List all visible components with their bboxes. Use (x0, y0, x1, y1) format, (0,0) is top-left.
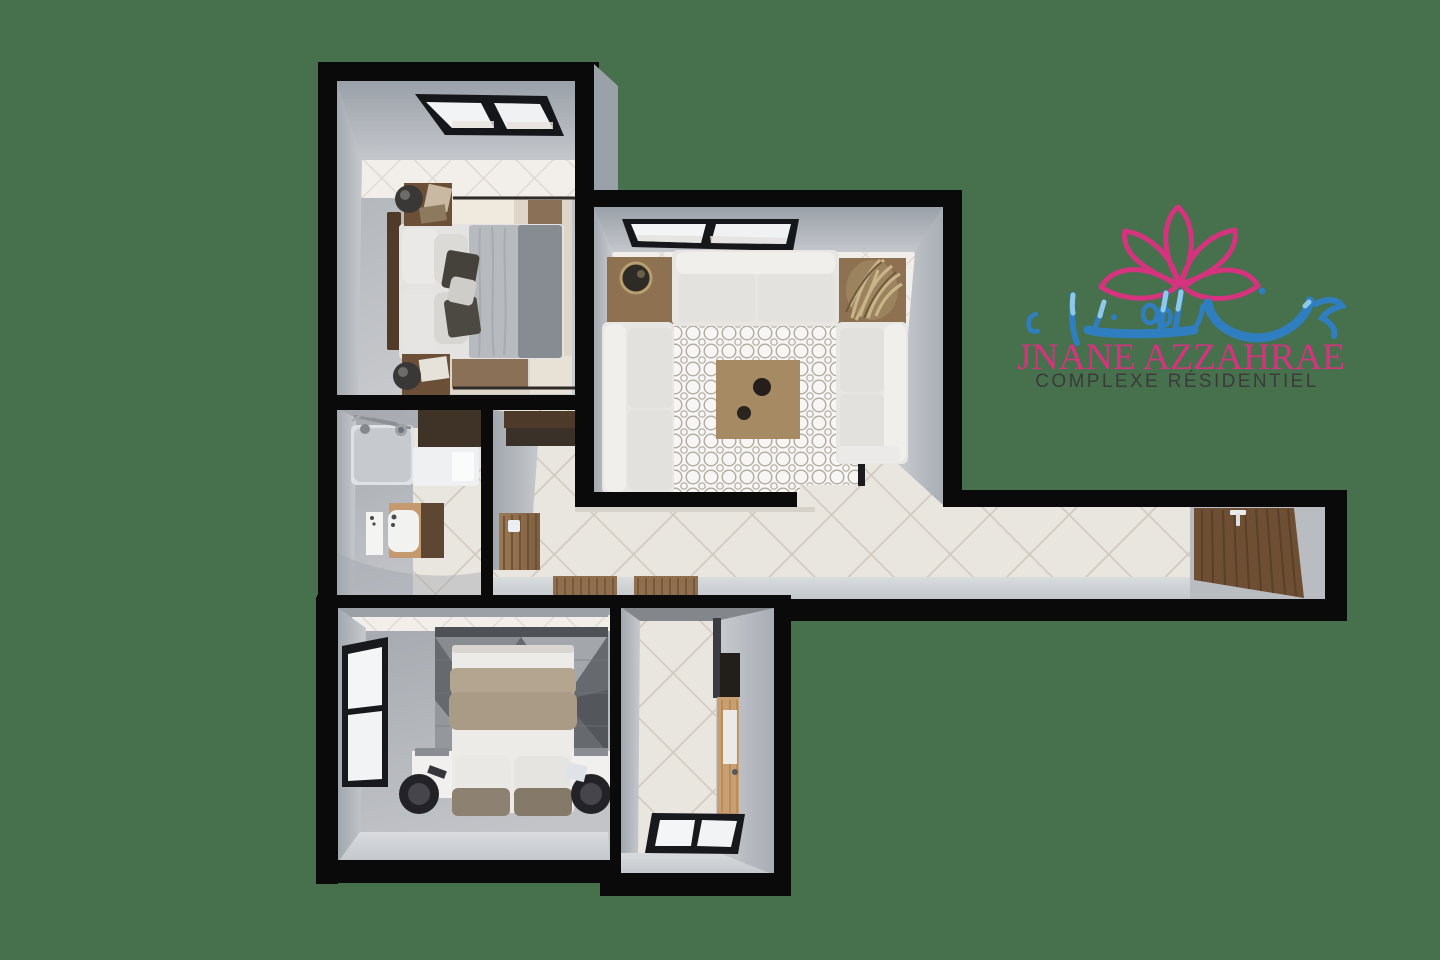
svg-text:COMPLEXE RÉSIDENTIEL: COMPLEXE RÉSIDENTIEL (1035, 371, 1318, 392)
